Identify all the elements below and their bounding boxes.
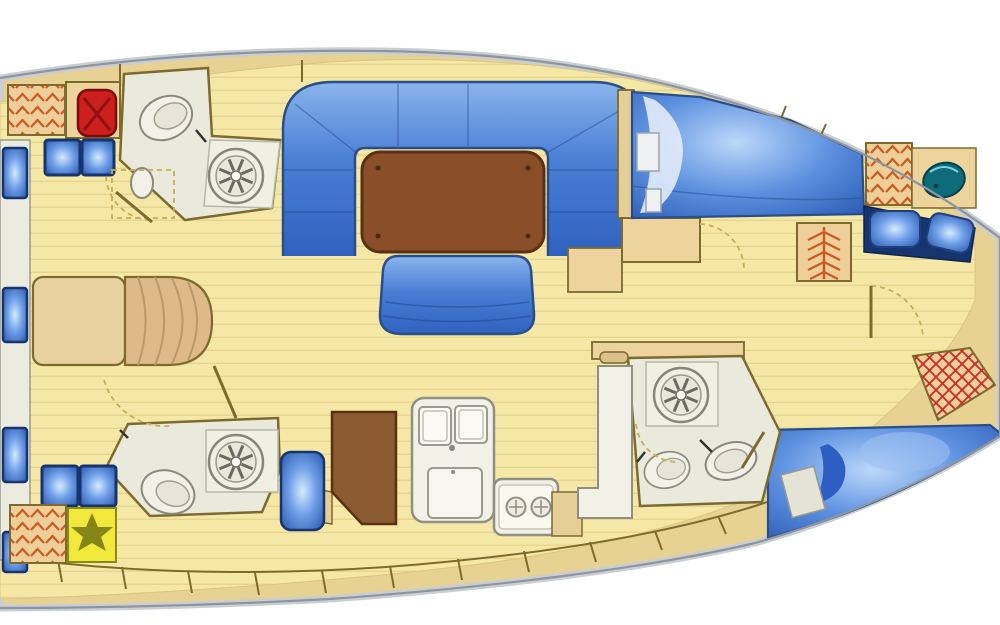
shower-drain-icon <box>654 368 708 422</box>
hull-window <box>3 288 27 342</box>
bow-locker-hatched <box>8 85 65 135</box>
shower-drain-icon <box>209 149 263 203</box>
wash-basin-icon <box>131 168 153 198</box>
floor-plan-svg <box>0 0 1000 625</box>
anchor-windlass <box>66 82 120 138</box>
forward-berth <box>33 277 212 365</box>
deck-hatch <box>82 140 114 175</box>
stern-locker-hatched <box>10 505 66 563</box>
corridor-cabinet <box>622 218 700 262</box>
aft-cabin-upper-berth <box>632 92 864 218</box>
fridge-door <box>428 468 482 518</box>
nav-seat <box>281 452 324 530</box>
faucet-icon <box>449 445 455 451</box>
hull-window <box>3 428 27 482</box>
settee-end-cabinet <box>568 248 622 292</box>
galley-sink-unit <box>412 398 494 522</box>
aft-cabin-lower-berth <box>768 425 1000 538</box>
boat-floor-plan <box>0 0 1000 625</box>
deck-hatch <box>45 140 80 175</box>
liferaft-box <box>68 508 116 562</box>
deck-hatch <box>80 466 116 506</box>
galley-stove <box>494 479 558 535</box>
deck-hatch <box>42 466 78 506</box>
hull-window <box>3 148 27 198</box>
aft-locker-hatched <box>866 143 912 205</box>
salon-table <box>362 152 544 252</box>
salon-bench <box>380 256 534 334</box>
louvered-locker <box>797 223 851 281</box>
shower-drain-icon <box>209 435 263 489</box>
